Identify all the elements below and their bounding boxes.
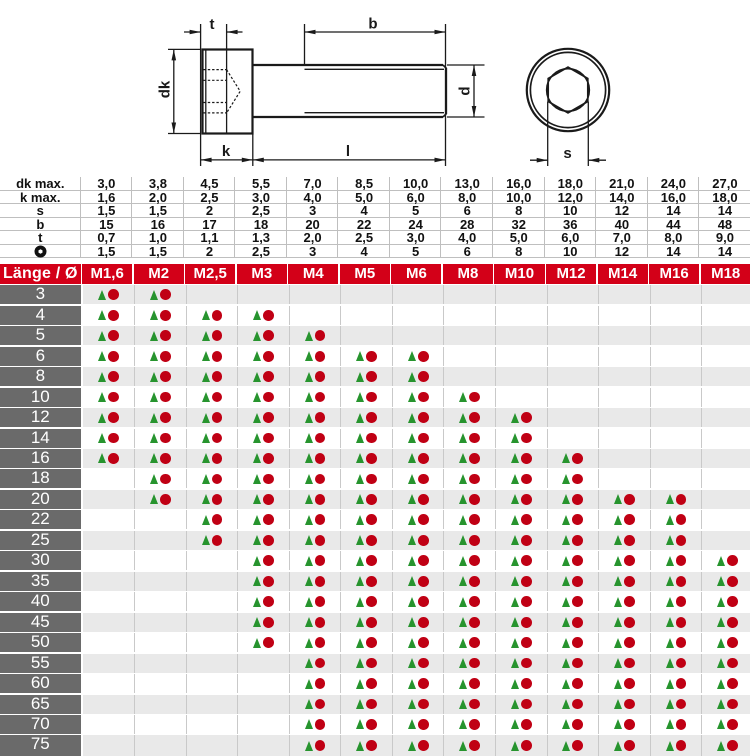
svg-text:t: t xyxy=(210,16,215,33)
svg-text:k: k xyxy=(222,143,231,160)
svg-text:s: s xyxy=(563,145,571,162)
svg-text:l: l xyxy=(346,143,350,160)
svg-text:dk: dk xyxy=(157,80,174,98)
svg-text:d: d xyxy=(457,86,474,95)
svg-text:b: b xyxy=(368,16,377,33)
